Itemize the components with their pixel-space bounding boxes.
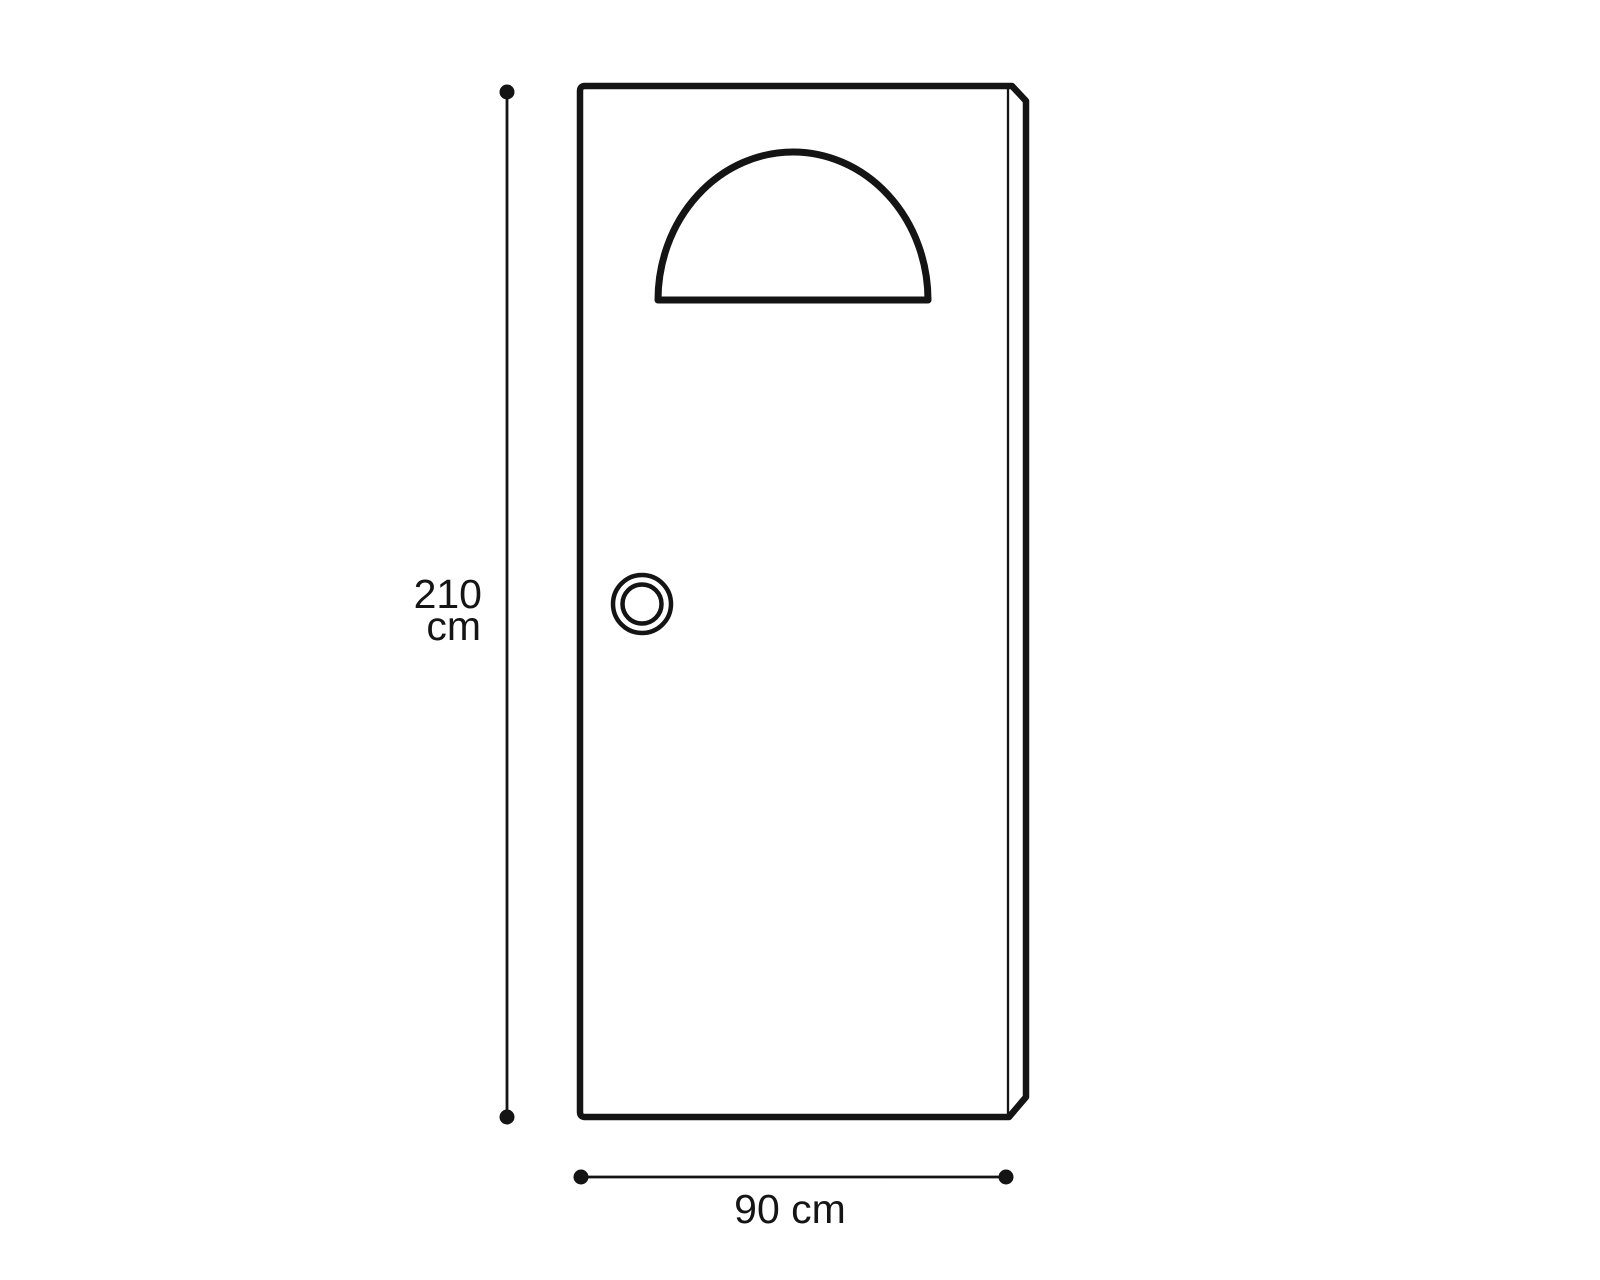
door-diagram-svg: 210 cm 90 cm bbox=[0, 0, 1600, 1280]
width-dimension-right-dot bbox=[999, 1170, 1014, 1185]
width-dimension-label: 90 cm bbox=[734, 1186, 846, 1232]
height-dimension-bottom-dot bbox=[500, 1110, 515, 1125]
diagram-shapes bbox=[500, 85, 1027, 1185]
width-dimension-left-dot bbox=[574, 1170, 589, 1185]
door-dimension-figure: 210 cm 90 cm bbox=[0, 0, 1600, 1280]
height-dimension-top-dot bbox=[500, 85, 515, 100]
height-dimension-label-unit: cm bbox=[426, 603, 481, 649]
